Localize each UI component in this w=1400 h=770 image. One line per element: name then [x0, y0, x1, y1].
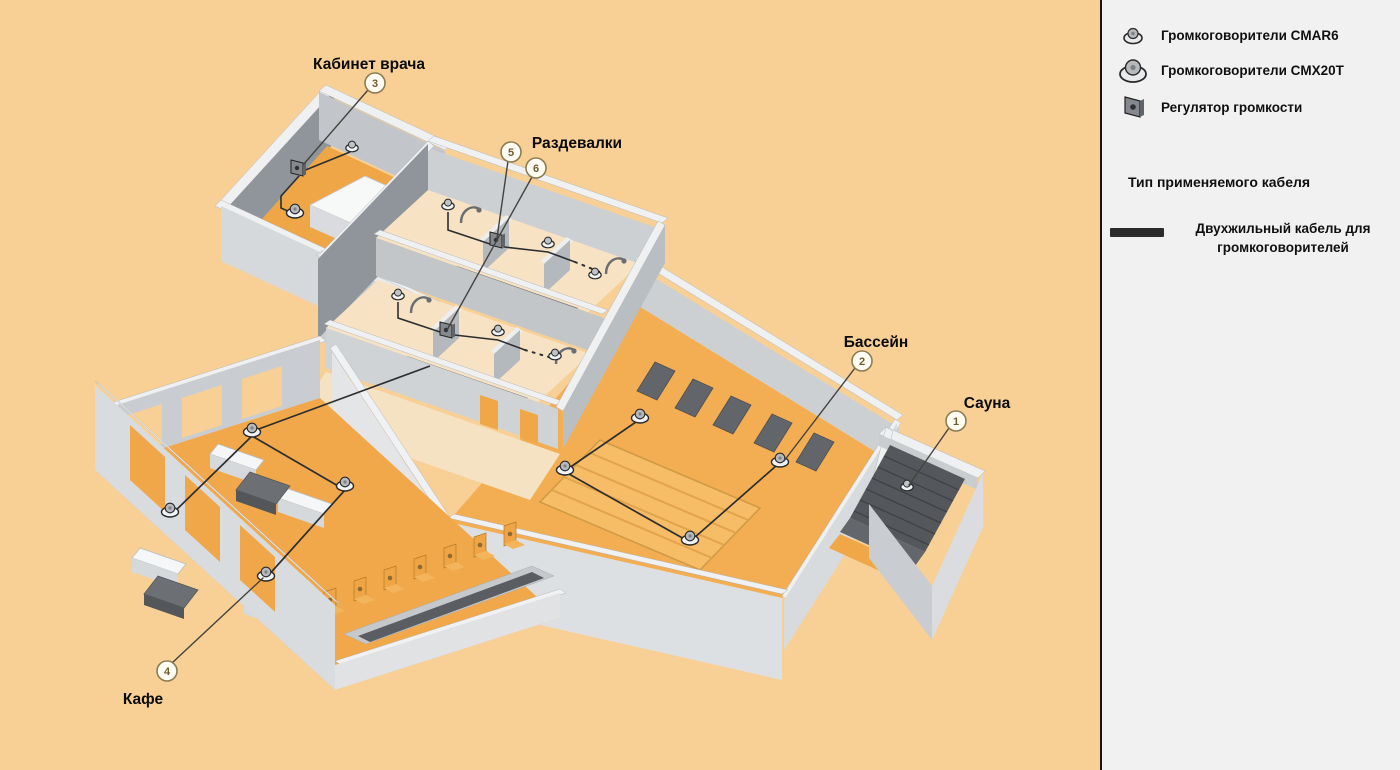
legend-item-regulator: Регулятор громкости	[1102, 92, 1400, 122]
legend-panel: Громкоговорители CMAR6 Громкоговорители …	[1100, 0, 1400, 770]
speaker-installation-diagram: 1 2 3 4 5 6 Кабинет врача Раздевалки Бас…	[0, 0, 1400, 770]
room-label-pool: Бассейн	[844, 334, 909, 351]
volume-regulator-icon	[1114, 92, 1152, 122]
room-label-cafe: Кафе	[123, 691, 164, 708]
cable-swatch-icon	[1110, 228, 1164, 237]
cable-label-line2: громкоговорителей	[1217, 240, 1349, 255]
ceiling-speaker-large-icon	[1114, 54, 1152, 86]
callout-4: 4	[157, 661, 177, 681]
ceiling-speaker-small-icon	[1114, 22, 1152, 48]
callout-number: 2	[859, 356, 865, 368]
cable-label-line1: Двухжильный кабель для	[1196, 221, 1371, 236]
legend-item-label: Громкоговорители CMAR6	[1161, 28, 1339, 43]
legend-item-label: Регулятор громкости	[1161, 100, 1302, 115]
callout-number: 4	[164, 666, 171, 678]
callout-6: 6	[526, 158, 546, 178]
callout-3: 3	[365, 73, 385, 93]
callout-5: 5	[501, 142, 521, 162]
room-label-locker-rooms: Раздевалки	[532, 135, 622, 152]
legend-item-cmar6: Громкоговорители CMAR6	[1102, 22, 1400, 48]
callout-2: 2	[852, 351, 872, 371]
doorway	[520, 409, 538, 444]
legend-item-cable: Двухжильный кабель для громкоговорителей	[1102, 220, 1400, 258]
cable-label: Двухжильный кабель для громкоговорителей	[1176, 220, 1390, 258]
callout-1: 1	[946, 411, 966, 431]
callout-number: 6	[533, 163, 539, 175]
callout-number: 5	[508, 147, 514, 159]
callout-number: 1	[953, 416, 959, 428]
cable-section-title: Тип применяемого кабеля	[1128, 174, 1400, 190]
legend-item-cmx20t: Громкоговорители CMX20T	[1102, 54, 1400, 86]
room-label-sauna: Сауна	[964, 395, 1011, 412]
legend-item-label: Громкоговорители CMX20T	[1161, 63, 1344, 78]
isometric-building-scene: 1 2 3 4 5 6 Кабинет врача Раздевалки Бас…	[0, 0, 1100, 770]
room-label-doctor-office: Кабинет врача	[313, 56, 425, 73]
callout-number: 3	[372, 78, 378, 90]
doorway	[480, 395, 498, 430]
